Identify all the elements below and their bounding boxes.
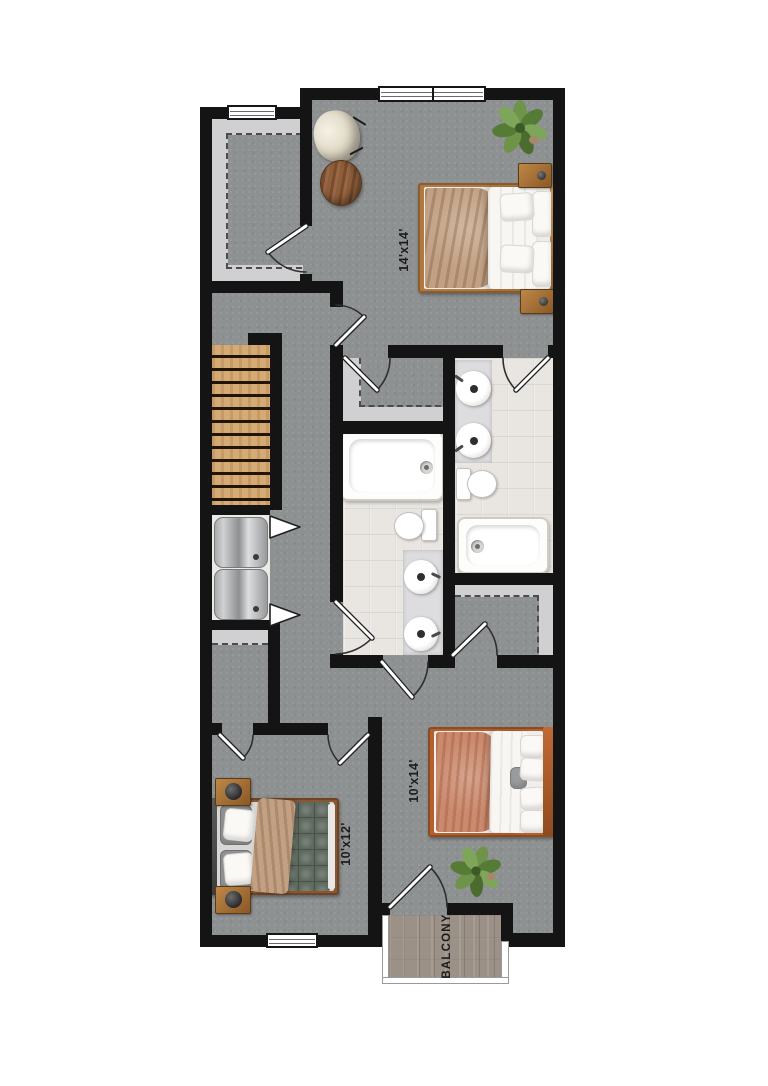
plant-leaves	[492, 100, 548, 156]
plant	[492, 100, 548, 156]
room-dimension-label: 10'x12'	[338, 804, 354, 884]
room-dimension-label: 14'x14'	[396, 210, 412, 290]
room-dimension-label: 10'x14'	[406, 741, 422, 821]
plant	[450, 845, 502, 897]
plant-leaves	[450, 845, 502, 897]
floor-plan: 14'x14' 10'x12' 10'x14' BALCONY	[0, 0, 768, 1086]
doors-layer	[0, 0, 768, 1086]
door	[220, 226, 548, 907]
bifold-door-icon	[270, 516, 300, 626]
balcony-label: BALCONY	[439, 906, 455, 986]
